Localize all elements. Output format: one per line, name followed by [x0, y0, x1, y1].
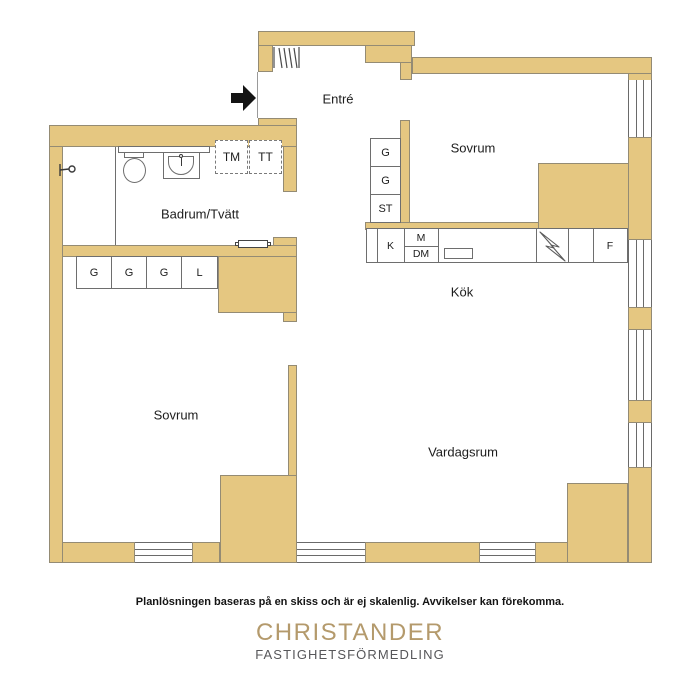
window [297, 542, 365, 563]
brand-subtitle: FASTIGHETSFÖRMEDLING [0, 647, 700, 662]
wall-segment [283, 312, 297, 322]
window [628, 240, 652, 307]
fridge-cell: K [377, 229, 404, 262]
wall-segment [567, 483, 628, 563]
window-pane-line [643, 423, 644, 467]
window-pane-line [643, 80, 644, 137]
wall-segment [628, 467, 652, 563]
stove-zigzag-icon [538, 231, 567, 262]
wall-segment [258, 45, 273, 72]
fridge-label: K [387, 240, 394, 252]
washer-label: TM [223, 150, 240, 164]
window-pane-line [297, 555, 365, 556]
kitchen-counter: K M DM F [366, 228, 628, 263]
window-pane-line [636, 240, 637, 307]
wall-segment [365, 542, 480, 563]
closet-label: ST [378, 203, 392, 215]
wall-segment [49, 146, 63, 563]
radiator-icon [238, 240, 268, 248]
floorplan-canvas: TM TT G G ST G G G L K M DM F Entré Sovr… [0, 0, 700, 700]
dryer-label: TT [258, 150, 273, 164]
window-pane-line [636, 330, 637, 400]
wall-segment [400, 120, 410, 230]
toilet-bowl-icon [123, 158, 146, 183]
closet-cell: G [111, 256, 147, 289]
closet-cell: L [181, 256, 218, 289]
freezer-label: F [607, 240, 613, 252]
wall-segment [412, 57, 652, 74]
wall-segment [273, 237, 297, 246]
kitchen-divider [438, 229, 439, 262]
room-label-vardagsrum: Vardagsrum [428, 445, 498, 460]
microwave-cell: M [404, 229, 438, 246]
kitchen-divider [536, 229, 537, 262]
room-label-sovrum-top: Sovrum [451, 141, 496, 156]
window [628, 330, 652, 400]
wall-segment [535, 542, 568, 563]
coat-rack-icon [272, 46, 302, 71]
wall-segment [220, 475, 297, 563]
window-pane-line [643, 330, 644, 400]
shower-mixer-icon [58, 162, 78, 180]
window-pane-line [135, 549, 192, 550]
closet-cell: G [370, 166, 401, 195]
dishwasher-cell: DM [404, 246, 438, 262]
dryer-box: TT [249, 140, 282, 174]
wall-segment [62, 542, 135, 563]
room-label-kok: Kök [451, 285, 473, 300]
window-pane-line [480, 549, 535, 550]
window-pane-line [135, 555, 192, 556]
wall-segment [258, 31, 415, 46]
closet-label: G [125, 267, 134, 279]
wall-segment [628, 307, 652, 330]
radiator-cap [267, 242, 271, 246]
entry-arrow-icon [231, 84, 257, 112]
closet-label: G [90, 267, 99, 279]
entry-doorway-line [257, 72, 258, 118]
window-pane-line [480, 555, 535, 556]
wall-segment [400, 62, 412, 80]
window [628, 423, 652, 467]
radiator-cap [235, 242, 239, 246]
room-label-badrum: Badrum/Tvätt [161, 207, 239, 222]
closet-cell: G [76, 256, 112, 289]
brand-logo: CHRISTANDER FASTIGHETSFÖRMEDLING [0, 620, 700, 662]
window [628, 80, 652, 137]
wall-segment [538, 163, 629, 230]
wall-segment [628, 400, 652, 423]
wall-segment [218, 256, 297, 313]
wall-segment [365, 45, 412, 63]
wall-segment [192, 542, 220, 563]
room-label-entre: Entré [322, 92, 353, 107]
closet-label: G [381, 147, 390, 159]
closet-cell: G [146, 256, 182, 289]
window-pane-line [297, 549, 365, 550]
kitchen-sink-icon [444, 248, 473, 259]
freezer-cell: F [593, 229, 627, 262]
window [480, 542, 535, 563]
window-pane-line [636, 423, 637, 467]
wall-segment [628, 137, 652, 240]
kitchen-divider [568, 229, 569, 262]
sink-tap-stem [181, 158, 182, 166]
window [135, 542, 192, 563]
window-pane-line [643, 240, 644, 307]
wall-segment [258, 118, 297, 126]
washer-box: TM [215, 140, 248, 174]
closet-cell: ST [370, 194, 401, 223]
microwave-dishwasher-divider [404, 246, 438, 247]
brand-name: CHRISTANDER [0, 620, 700, 646]
closet-label: G [160, 267, 169, 279]
disclaimer-text: Planlösningen baseras på en skiss och är… [0, 596, 700, 608]
window-pane-line [636, 80, 637, 137]
shower-divider-line [115, 147, 116, 245]
closet-cell: G [370, 138, 401, 167]
closet-label: L [196, 267, 202, 279]
room-label-sovrum-bottom: Sovrum [154, 408, 199, 423]
dishwasher-label: DM [413, 248, 429, 260]
wall-segment [283, 146, 297, 192]
microwave-label: M [417, 232, 426, 244]
closet-label: G [381, 175, 390, 187]
